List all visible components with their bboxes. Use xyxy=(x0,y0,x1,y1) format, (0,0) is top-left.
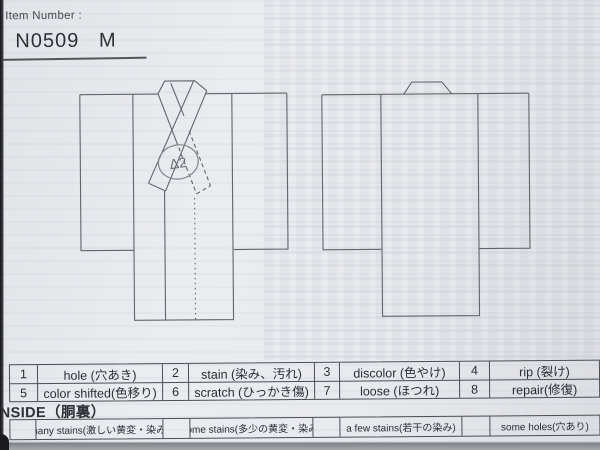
legend-label-cell: hole (穴あき) xyxy=(37,364,162,383)
legend-num-cell: 5 xyxy=(10,383,37,401)
legend-num-cell: 4 xyxy=(459,362,489,380)
legend-label-cell: rip (裂け) xyxy=(489,361,599,380)
legend-num-cell: 6 xyxy=(162,382,188,400)
legend-label-cell: loose (ほつれ) xyxy=(339,380,459,399)
condition-label-cell: some holes(穴あり) xyxy=(489,416,599,436)
legend-num-cell: 8 xyxy=(459,380,489,398)
checkbox-cell xyxy=(461,417,489,436)
kimono-front-diagram: Δ2 xyxy=(80,80,289,321)
legend-label-cell: discolor (色やけ) xyxy=(339,362,459,381)
legend-label-cell: color shifted(色移り) xyxy=(37,382,162,401)
legend-table: 1 hole (穴あき) 2 stain (染み、汚れ) 3 discolor … xyxy=(9,360,600,403)
legend-num-cell: 1 xyxy=(10,365,37,383)
legend-num-cell: 2 xyxy=(162,364,188,382)
kimono-back-diagram xyxy=(322,81,531,317)
legend-label-cell: repair(修復) xyxy=(489,379,599,398)
scanned-inspection-sheet: Item Number : N0509 M xyxy=(0,0,600,450)
condition-label-cell: many stains(激しい黄変・染み) xyxy=(35,419,162,439)
legend-num-cell: 3 xyxy=(314,363,339,381)
checkbox-cell xyxy=(10,420,35,439)
legend-label-cell: stain (染み、汚れ) xyxy=(188,363,314,382)
condition-label-cell: a few stains(若干の染み) xyxy=(339,417,461,437)
legend-num-cell: 7 xyxy=(314,381,339,399)
paper-content: Item Number : N0509 M xyxy=(0,0,600,450)
legend-label-cell: scratch (ひっかき傷) xyxy=(188,381,314,400)
checkbox-cell xyxy=(312,418,339,437)
defect-mark-label: Δ2 xyxy=(168,154,188,172)
scan-left-edge xyxy=(0,0,4,450)
condition-label-cell: some stains(多少の黄変・染み) xyxy=(189,418,312,438)
paper-bottom-edge-shadow xyxy=(0,443,600,450)
checkbox-cell xyxy=(162,419,189,438)
